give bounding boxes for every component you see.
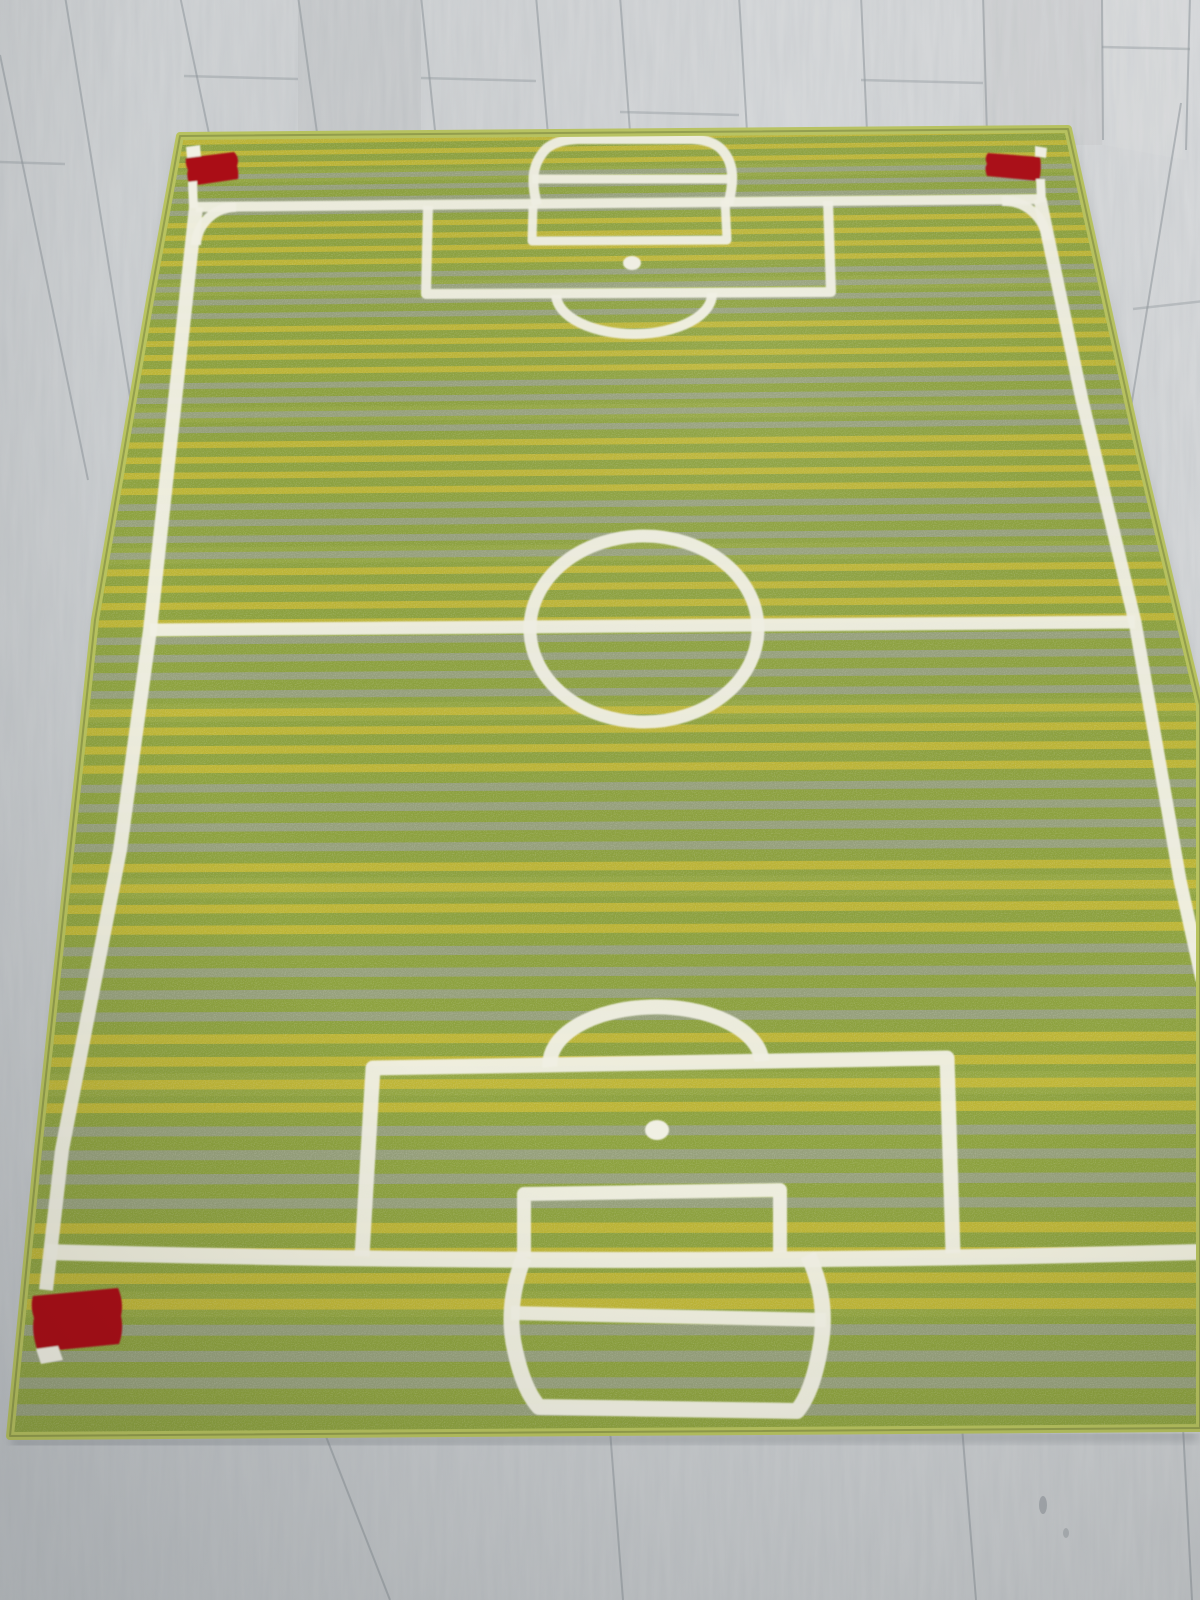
lighting-vignette	[0, 0, 1200, 1600]
rug-photo-scene	[0, 0, 1200, 1600]
